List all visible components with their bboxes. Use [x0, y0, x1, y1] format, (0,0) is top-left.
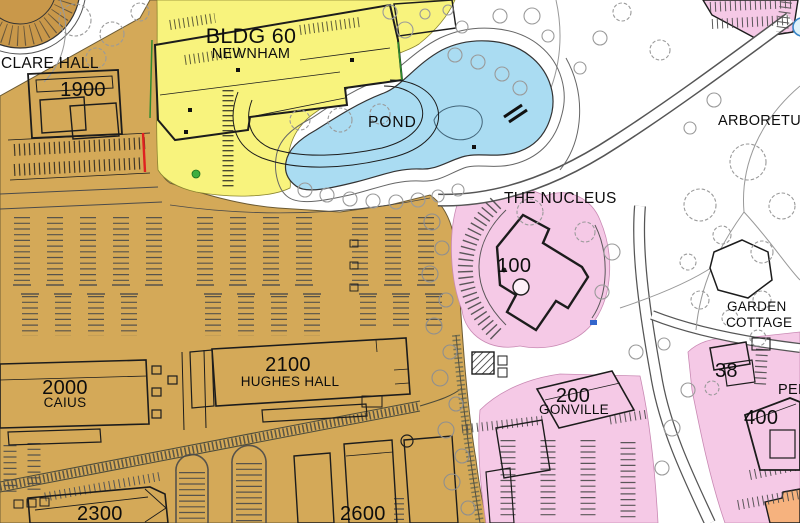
label-2100: 2100 [265, 355, 311, 375]
label-the-nucleus: THE NUCLEUS [504, 191, 617, 207]
label-pem: PEM [778, 383, 800, 398]
label-2300: 2300 [77, 504, 123, 523]
label-caius: CAIUS [44, 396, 87, 410]
label-400: 400 [744, 408, 778, 428]
utility-building [472, 352, 494, 374]
site-plan-drawing [0, 0, 800, 523]
green-dot [192, 170, 200, 178]
label-garden: GARDEN [727, 300, 787, 314]
blue-utility-mark [590, 320, 597, 325]
label-hughes-hall: HUGHES HALL [241, 375, 340, 389]
label-newnham: NEWNHAM [212, 47, 291, 62]
label-38: 38 [715, 361, 738, 381]
garden-cottage-building [710, 240, 772, 298]
site-plan-map[interactable]: CLARE HALL 1900 BLDG 60 NEWNHAM POND ARB… [0, 0, 800, 523]
label-100: 100 [497, 256, 531, 276]
label-gonville: GONVILLE [539, 403, 609, 417]
label-1900: 1900 [60, 80, 106, 100]
label-clare-hall: CLARE HALL [1, 56, 99, 72]
label-2600: 2600 [340, 504, 386, 523]
clare-hall-circle [0, 0, 86, 54]
label-cottage: COTTAGE [726, 316, 792, 330]
label-bldg-60: BLDG 60 [206, 26, 297, 48]
label-pond: POND [368, 115, 417, 131]
label-arboretum: ARBORETUM [718, 114, 800, 129]
